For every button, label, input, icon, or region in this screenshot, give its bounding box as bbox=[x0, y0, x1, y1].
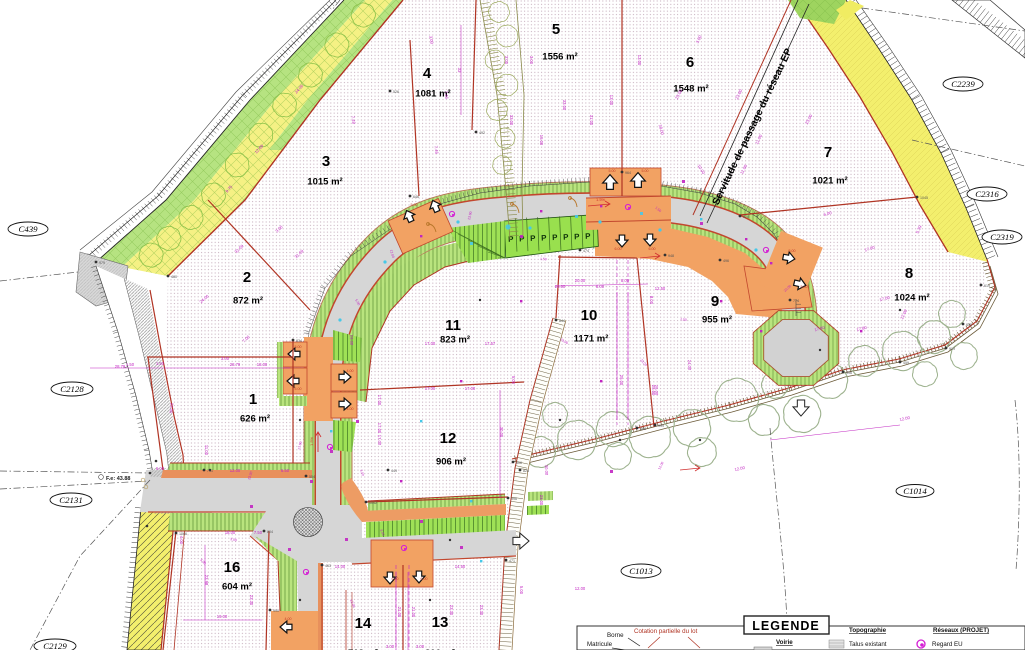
svg-text:463: 463 bbox=[325, 564, 331, 568]
svg-text:948: 948 bbox=[668, 254, 674, 258]
svg-text:14.50: 14.50 bbox=[455, 564, 466, 569]
svg-text:C439: C439 bbox=[18, 224, 38, 234]
svg-text:P: P bbox=[552, 233, 558, 242]
svg-text:Réseaux (PROJET): Réseaux (PROJET) bbox=[933, 627, 989, 634]
svg-text:C1014: C1014 bbox=[903, 486, 927, 496]
svg-text:6.00: 6.00 bbox=[649, 247, 656, 251]
svg-text:1015 m²: 1015 m² bbox=[307, 177, 342, 188]
svg-text:7: 7 bbox=[824, 144, 832, 161]
svg-text:23.00: 23.00 bbox=[539, 495, 544, 506]
svg-text:990: 990 bbox=[273, 609, 279, 613]
svg-text:8.00: 8.00 bbox=[621, 278, 630, 283]
svg-text:17.00: 17.00 bbox=[377, 395, 382, 406]
svg-text:459: 459 bbox=[903, 361, 909, 365]
svg-text:1.50: 1.50 bbox=[156, 361, 165, 366]
svg-text:24.00: 24.00 bbox=[687, 360, 692, 371]
svg-text:2: 2 bbox=[243, 269, 251, 286]
svg-text:1042: 1042 bbox=[369, 501, 377, 505]
svg-text:17.00: 17.00 bbox=[425, 341, 436, 346]
svg-text:C2128: C2128 bbox=[60, 384, 84, 394]
svg-text:20.00: 20.00 bbox=[575, 278, 586, 283]
svg-text:1066: 1066 bbox=[179, 532, 187, 536]
svg-text:15.00: 15.00 bbox=[539, 135, 544, 146]
svg-text:17.00: 17.00 bbox=[425, 386, 436, 391]
svg-text:Matricule: Matricule bbox=[587, 641, 613, 648]
svg-text:1: 1 bbox=[249, 391, 257, 408]
svg-text:P: P bbox=[530, 234, 536, 243]
svg-text:474: 474 bbox=[583, 249, 589, 253]
svg-text:33.00: 33.00 bbox=[509, 115, 514, 126]
svg-text:5.00: 5.00 bbox=[295, 387, 302, 391]
svg-text:31.00: 31.00 bbox=[589, 115, 594, 126]
svg-text:F.e: 43.88: F.e: 43.88 bbox=[106, 476, 130, 482]
svg-text:14.00: 14.00 bbox=[335, 564, 346, 569]
svg-text:18.00: 18.00 bbox=[257, 362, 268, 367]
svg-text:999: 999 bbox=[658, 424, 664, 428]
svg-text:30.00: 30.00 bbox=[544, 465, 549, 476]
svg-text:28.79: 28.79 bbox=[230, 362, 241, 367]
svg-text:5.00: 5.00 bbox=[642, 169, 649, 173]
svg-text:Borne: Borne bbox=[607, 632, 624, 639]
svg-text:C2131: C2131 bbox=[59, 495, 82, 505]
svg-text:3.00: 3.00 bbox=[416, 644, 425, 649]
svg-text:996: 996 bbox=[511, 497, 517, 501]
svg-text:25.00: 25.00 bbox=[654, 385, 659, 396]
svg-text:4.00: 4.00 bbox=[347, 407, 354, 411]
svg-text:21.00: 21.00 bbox=[397, 607, 402, 618]
svg-text:628: 628 bbox=[743, 215, 749, 219]
svg-text:619: 619 bbox=[984, 284, 990, 288]
svg-text:13.00: 13.00 bbox=[637, 55, 642, 66]
svg-text:28.79: 28.79 bbox=[115, 364, 126, 369]
svg-text:646: 646 bbox=[413, 195, 419, 199]
svg-text:Cotation partielle du lot: Cotation partielle du lot bbox=[634, 628, 698, 635]
svg-text:1021 m²: 1021 m² bbox=[812, 176, 847, 187]
svg-text:12.00: 12.00 bbox=[230, 468, 241, 473]
svg-text:23.30: 23.30 bbox=[449, 605, 454, 616]
svg-text:774: 774 bbox=[793, 299, 799, 303]
svg-text:5.00: 5.00 bbox=[511, 376, 516, 385]
svg-text:20.00: 20.00 bbox=[555, 284, 566, 289]
svg-text:23.00: 23.00 bbox=[349, 335, 354, 346]
svg-text:12: 12 bbox=[440, 430, 457, 447]
svg-text:11.00: 11.00 bbox=[204, 445, 209, 456]
svg-text:Topographie: Topographie bbox=[849, 627, 887, 634]
svg-text:3: 3 bbox=[322, 153, 330, 170]
svg-text:3.00: 3.00 bbox=[529, 56, 534, 65]
svg-text:23.30: 23.30 bbox=[479, 605, 484, 616]
svg-text:13: 13 bbox=[432, 614, 449, 631]
svg-text:LEGENDE: LEGENDE bbox=[752, 619, 819, 633]
svg-text:5: 5 bbox=[552, 21, 560, 38]
svg-text:488: 488 bbox=[640, 427, 646, 431]
svg-text:17.00: 17.00 bbox=[377, 423, 382, 434]
svg-text:19.00: 19.00 bbox=[217, 614, 228, 619]
svg-text:3.00: 3.00 bbox=[504, 56, 509, 65]
svg-text:23.00: 23.00 bbox=[168, 403, 174, 415]
svg-text:C2239: C2239 bbox=[951, 79, 975, 89]
svg-text:1556 m²: 1556 m² bbox=[542, 52, 577, 63]
svg-text:C2129: C2129 bbox=[43, 641, 67, 650]
svg-text:C2319: C2319 bbox=[990, 232, 1014, 242]
svg-text:4.00: 4.00 bbox=[179, 536, 184, 545]
svg-text:554: 554 bbox=[309, 475, 315, 479]
svg-text:Talus existant: Talus existant bbox=[849, 641, 887, 648]
svg-text:1.5%: 1.5% bbox=[596, 197, 606, 202]
svg-text:12.50: 12.50 bbox=[655, 286, 666, 291]
svg-text:C1013: C1013 bbox=[629, 566, 653, 576]
svg-text:4: 4 bbox=[423, 65, 432, 82]
svg-text:6.00: 6.00 bbox=[421, 577, 428, 581]
svg-text:P: P bbox=[574, 232, 580, 241]
svg-text:492: 492 bbox=[479, 131, 485, 135]
svg-text:823 m²: 823 m² bbox=[440, 335, 470, 346]
svg-text:P: P bbox=[563, 233, 569, 242]
svg-text:P: P bbox=[541, 233, 547, 242]
svg-text:11: 11 bbox=[445, 317, 461, 334]
svg-text:1024 m²: 1024 m² bbox=[894, 293, 929, 304]
svg-text:16: 16 bbox=[224, 559, 241, 576]
svg-text:3.00: 3.00 bbox=[386, 644, 395, 649]
svg-text:906 m²: 906 m² bbox=[436, 457, 466, 468]
svg-text:8: 8 bbox=[905, 265, 913, 282]
svg-text:872 m²: 872 m² bbox=[233, 296, 263, 307]
svg-text:17.57: 17.57 bbox=[485, 341, 496, 346]
svg-text:438: 438 bbox=[966, 323, 972, 327]
svg-text:5.00: 5.00 bbox=[411, 203, 418, 207]
svg-text:979: 979 bbox=[99, 261, 105, 265]
svg-text:5.00: 5.00 bbox=[789, 249, 796, 253]
svg-text:18.00: 18.00 bbox=[225, 530, 236, 535]
svg-text:1045: 1045 bbox=[920, 196, 928, 200]
svg-text:955 m²: 955 m² bbox=[702, 315, 732, 326]
svg-text:12.00: 12.00 bbox=[575, 586, 586, 591]
svg-text:626 m²: 626 m² bbox=[240, 414, 270, 425]
svg-text:1171 m²: 1171 m² bbox=[574, 334, 609, 345]
svg-text:4.00: 4.00 bbox=[285, 617, 292, 621]
svg-text:10: 10 bbox=[581, 307, 598, 324]
svg-text:919: 919 bbox=[949, 347, 955, 351]
svg-text:25.00: 25.00 bbox=[619, 375, 624, 386]
svg-text:17.00: 17.00 bbox=[465, 386, 476, 391]
svg-text:6: 6 bbox=[686, 54, 694, 71]
svg-text:14: 14 bbox=[355, 615, 372, 632]
svg-text:6.00: 6.00 bbox=[392, 577, 399, 581]
svg-text:834: 834 bbox=[296, 339, 302, 343]
svg-text:496: 496 bbox=[723, 259, 729, 263]
svg-text:6.00: 6.00 bbox=[615, 247, 622, 251]
svg-text:471: 471 bbox=[509, 559, 515, 563]
svg-text:5.00: 5.00 bbox=[519, 586, 524, 595]
svg-text:828: 828 bbox=[523, 469, 529, 473]
svg-text:804: 804 bbox=[267, 530, 273, 534]
svg-text:996: 996 bbox=[846, 371, 852, 375]
svg-text:C2316: C2316 bbox=[975, 189, 999, 199]
svg-text:5.00: 5.00 bbox=[609, 169, 616, 173]
svg-text:17.00: 17.00 bbox=[377, 435, 382, 446]
svg-text:P: P bbox=[585, 232, 591, 241]
svg-text:13.00: 13.00 bbox=[609, 95, 614, 106]
svg-text:1.5%: 1.5% bbox=[309, 436, 314, 446]
svg-text:5.00: 5.00 bbox=[801, 285, 808, 289]
svg-text:806: 806 bbox=[516, 461, 522, 465]
svg-text:449: 449 bbox=[391, 469, 397, 473]
svg-text:7.50: 7.50 bbox=[254, 530, 263, 535]
svg-text:5.00: 5.00 bbox=[295, 345, 302, 349]
svg-text:964: 964 bbox=[625, 171, 631, 175]
svg-text:8.00: 8.00 bbox=[596, 284, 605, 289]
svg-text:1.50: 1.50 bbox=[540, 257, 547, 261]
svg-text:4.00: 4.00 bbox=[347, 369, 354, 373]
svg-text:526: 526 bbox=[393, 90, 399, 94]
svg-text:Regard EU: Regard EU bbox=[932, 641, 963, 648]
svg-text:6.00: 6.00 bbox=[156, 466, 165, 471]
svg-text:8.00: 8.00 bbox=[649, 296, 654, 305]
svg-text:9: 9 bbox=[711, 293, 719, 310]
svg-text:844: 844 bbox=[559, 319, 565, 323]
svg-text:1.50: 1.50 bbox=[126, 362, 135, 367]
svg-text:6.50: 6.50 bbox=[281, 468, 290, 473]
svg-text:3.00: 3.00 bbox=[221, 356, 230, 361]
svg-text:Voirie: Voirie bbox=[776, 639, 793, 646]
svg-text:460: 460 bbox=[171, 275, 177, 279]
svg-text:604 m²: 604 m² bbox=[222, 582, 252, 593]
svg-text:23.30: 23.30 bbox=[249, 595, 254, 606]
svg-text:21.00: 21.00 bbox=[411, 607, 416, 618]
svg-text:33.00: 33.00 bbox=[562, 100, 567, 111]
